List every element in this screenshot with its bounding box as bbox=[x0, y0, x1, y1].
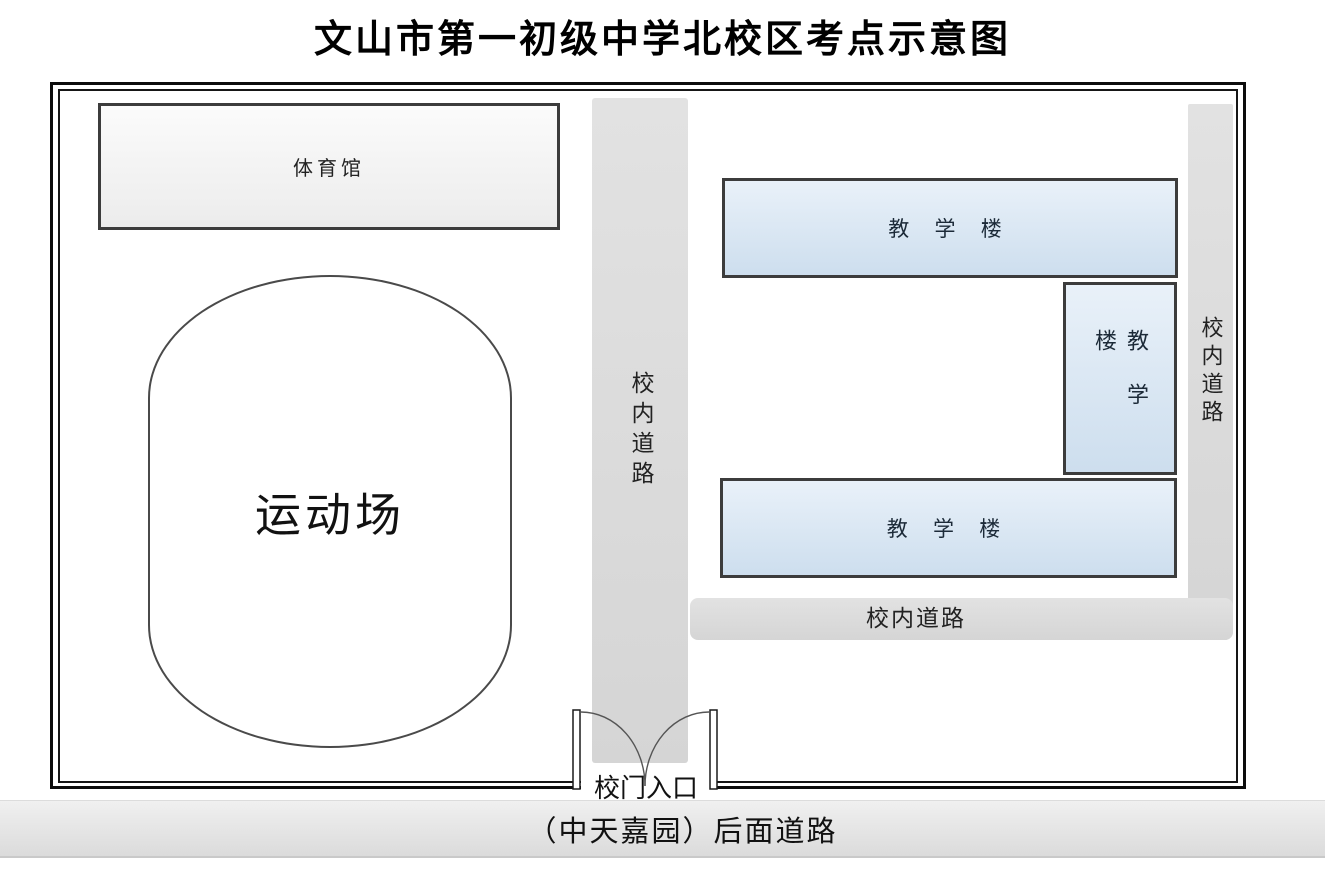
outside-street-label: （中天嘉园）后面道路 bbox=[527, 808, 837, 850]
campus-inner-wall bbox=[58, 89, 1238, 783]
bottom-campus-road-label: 校内道路 bbox=[816, 598, 1016, 640]
outside-street: （中天嘉园）后面道路 bbox=[0, 800, 1325, 858]
page-title: 文山市第一初级中学北校区考点示意图 bbox=[0, 8, 1325, 63]
gate-entrance-label: 校门入口 bbox=[566, 768, 726, 805]
